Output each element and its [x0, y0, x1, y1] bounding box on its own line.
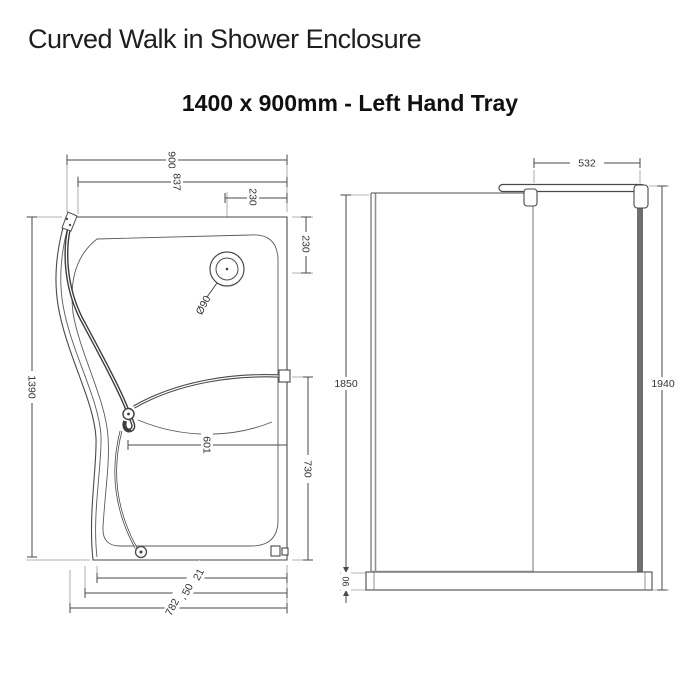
dim-label-overall-height: 1940 — [651, 378, 675, 390]
top-hinge-screw-1 — [66, 218, 68, 220]
dim-bar-length: 532 — [534, 157, 640, 170]
plan-view: Ø90 900 837 230 — [25, 146, 314, 624]
dim-bottom-mid: 750 — [85, 575, 287, 609]
dim-panel-height: 1850 — [330, 195, 362, 573]
top-hinge-screw-2 — [69, 224, 71, 226]
dim-label-bar-length: 532 — [578, 158, 596, 170]
bottom-left-bracket-screw — [140, 551, 143, 554]
dim-bottom-outer: 782 — [70, 590, 287, 624]
wall-profile — [637, 187, 643, 586]
drain-center — [226, 268, 229, 271]
dim-overall-height: 1940 — [645, 186, 681, 590]
tray-side-profile — [366, 572, 652, 590]
support-bar-side — [499, 185, 645, 192]
bottom-right-bracket-b — [282, 548, 288, 555]
support-bar-wall-bracket — [279, 370, 290, 382]
dim-label-overall-width: 900 — [165, 151, 177, 169]
dim-label-opening-depth: 730 — [301, 460, 313, 478]
dim-opening-depth: 730 — [301, 377, 314, 560]
dim-label-tray-height: 90 — [341, 576, 351, 586]
dim-tray-height: 90 — [341, 560, 351, 603]
dim-label-rim-width: 837 — [170, 173, 182, 191]
dim-label-overall-depth: 1390 — [25, 375, 37, 399]
dim-overall-depth: 1390 — [25, 217, 38, 557]
tray-outline — [56, 217, 287, 560]
dim-label-drain-from-top: 230 — [299, 235, 311, 253]
product-drawing-page: Curved Walk in Shower Enclosure 1400 x 9… — [0, 0, 700, 700]
bottom-right-bracket-a — [271, 546, 280, 556]
side-extension-lines — [340, 170, 669, 590]
dim-drain-to-wall: 230 — [225, 185, 287, 209]
glass-post-center — [127, 413, 130, 416]
support-bar-glass-clamp — [524, 189, 537, 206]
side-view: 532 1850 1940 90 — [330, 157, 681, 604]
dim-label-drain-to-wall: 230 — [246, 188, 258, 206]
dim-label-bar-reach: 601 — [200, 436, 212, 454]
technical-drawing: Ø90 900 837 230 — [0, 0, 700, 700]
dim-drain-from-top: 230 — [299, 217, 312, 273]
dim-label-panel-height: 1850 — [334, 378, 358, 390]
support-bar-wall-mount — [634, 185, 648, 208]
